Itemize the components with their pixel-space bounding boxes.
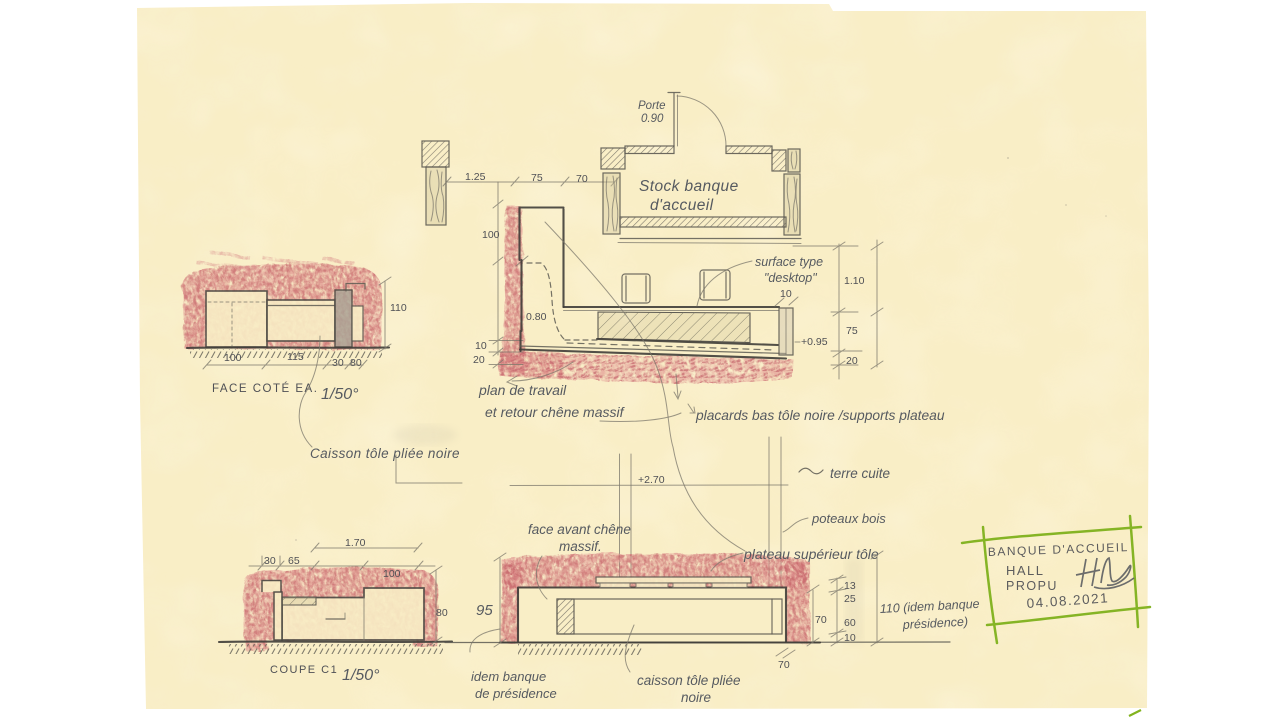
svg-text:100: 100 [224,352,242,364]
svg-text:75: 75 [531,172,543,184]
svg-text:+0.95: +0.95 [801,336,828,348]
svg-text:1.10: 1.10 [844,275,865,287]
svg-text:110: 110 [390,302,407,314]
svg-text:115: 115 [287,351,304,363]
svg-text:surface type: surface type [755,255,823,269]
svg-text:0.80: 0.80 [526,311,547,323]
svg-text:face avant chêne: face avant chêne [528,522,631,537]
svg-text:80: 80 [350,357,362,369]
svg-text:70: 70 [576,173,588,185]
svg-text:95: 95 [476,602,493,619]
svg-text:0.90: 0.90 [641,113,664,125]
svg-text:FACE COTÉ EA.: FACE COTÉ EA. [212,382,318,395]
svg-text:30: 30 [332,357,344,369]
svg-text:1/50°: 1/50° [321,386,359,403]
svg-text:10: 10 [780,288,792,300]
svg-text:"desktop": "desktop" [764,271,817,285]
svg-text:poteaux bois: poteaux bois [811,511,886,526]
svg-text:idem banque: idem banque [471,669,546,684]
svg-text:10: 10 [475,340,487,352]
svg-text:75: 75 [846,325,858,337]
svg-text:80: 80 [436,607,448,619]
svg-text:1.25: 1.25 [465,171,486,183]
svg-text:100: 100 [383,568,401,580]
svg-text:30: 30 [264,555,276,567]
svg-text:1.70: 1.70 [345,537,366,549]
svg-text:Porte: Porte [638,100,666,112]
svg-text:de présidence: de présidence [475,686,557,701]
svg-text:100: 100 [482,229,500,241]
svg-text:caisson tôle pliée: caisson tôle pliée [637,673,741,688]
svg-text:70: 70 [815,614,827,626]
svg-text:et retour chêne massif: et retour chêne massif [485,404,626,420]
svg-text:Stock banque: Stock banque [639,178,739,195]
svg-text:HALL: HALL [1006,563,1045,578]
svg-text:70: 70 [778,659,790,671]
svg-text:65: 65 [288,555,300,567]
svg-text:PROPU: PROPU [1006,579,1058,593]
svg-text:20: 20 [846,355,858,367]
svg-text:noire: noire [681,690,711,705]
svg-text:+2.70: +2.70 [638,474,665,486]
svg-text:1/50°: 1/50° [342,667,380,684]
svg-text:massif.: massif. [559,539,602,554]
svg-text:20: 20 [473,354,485,366]
svg-text:placards bas tôle noire /suppo: placards bas tôle noire /supports platea… [695,408,945,423]
svg-text:terre cuite: terre cuite [830,466,890,481]
svg-text:d'accueil: d'accueil [650,197,714,214]
svg-text:Caisson tôle pliée noire: Caisson tôle pliée noire [310,446,460,461]
svg-text:COUPE C1: COUPE C1 [270,664,338,676]
svg-text:plan de travail: plan de travail [478,382,567,398]
